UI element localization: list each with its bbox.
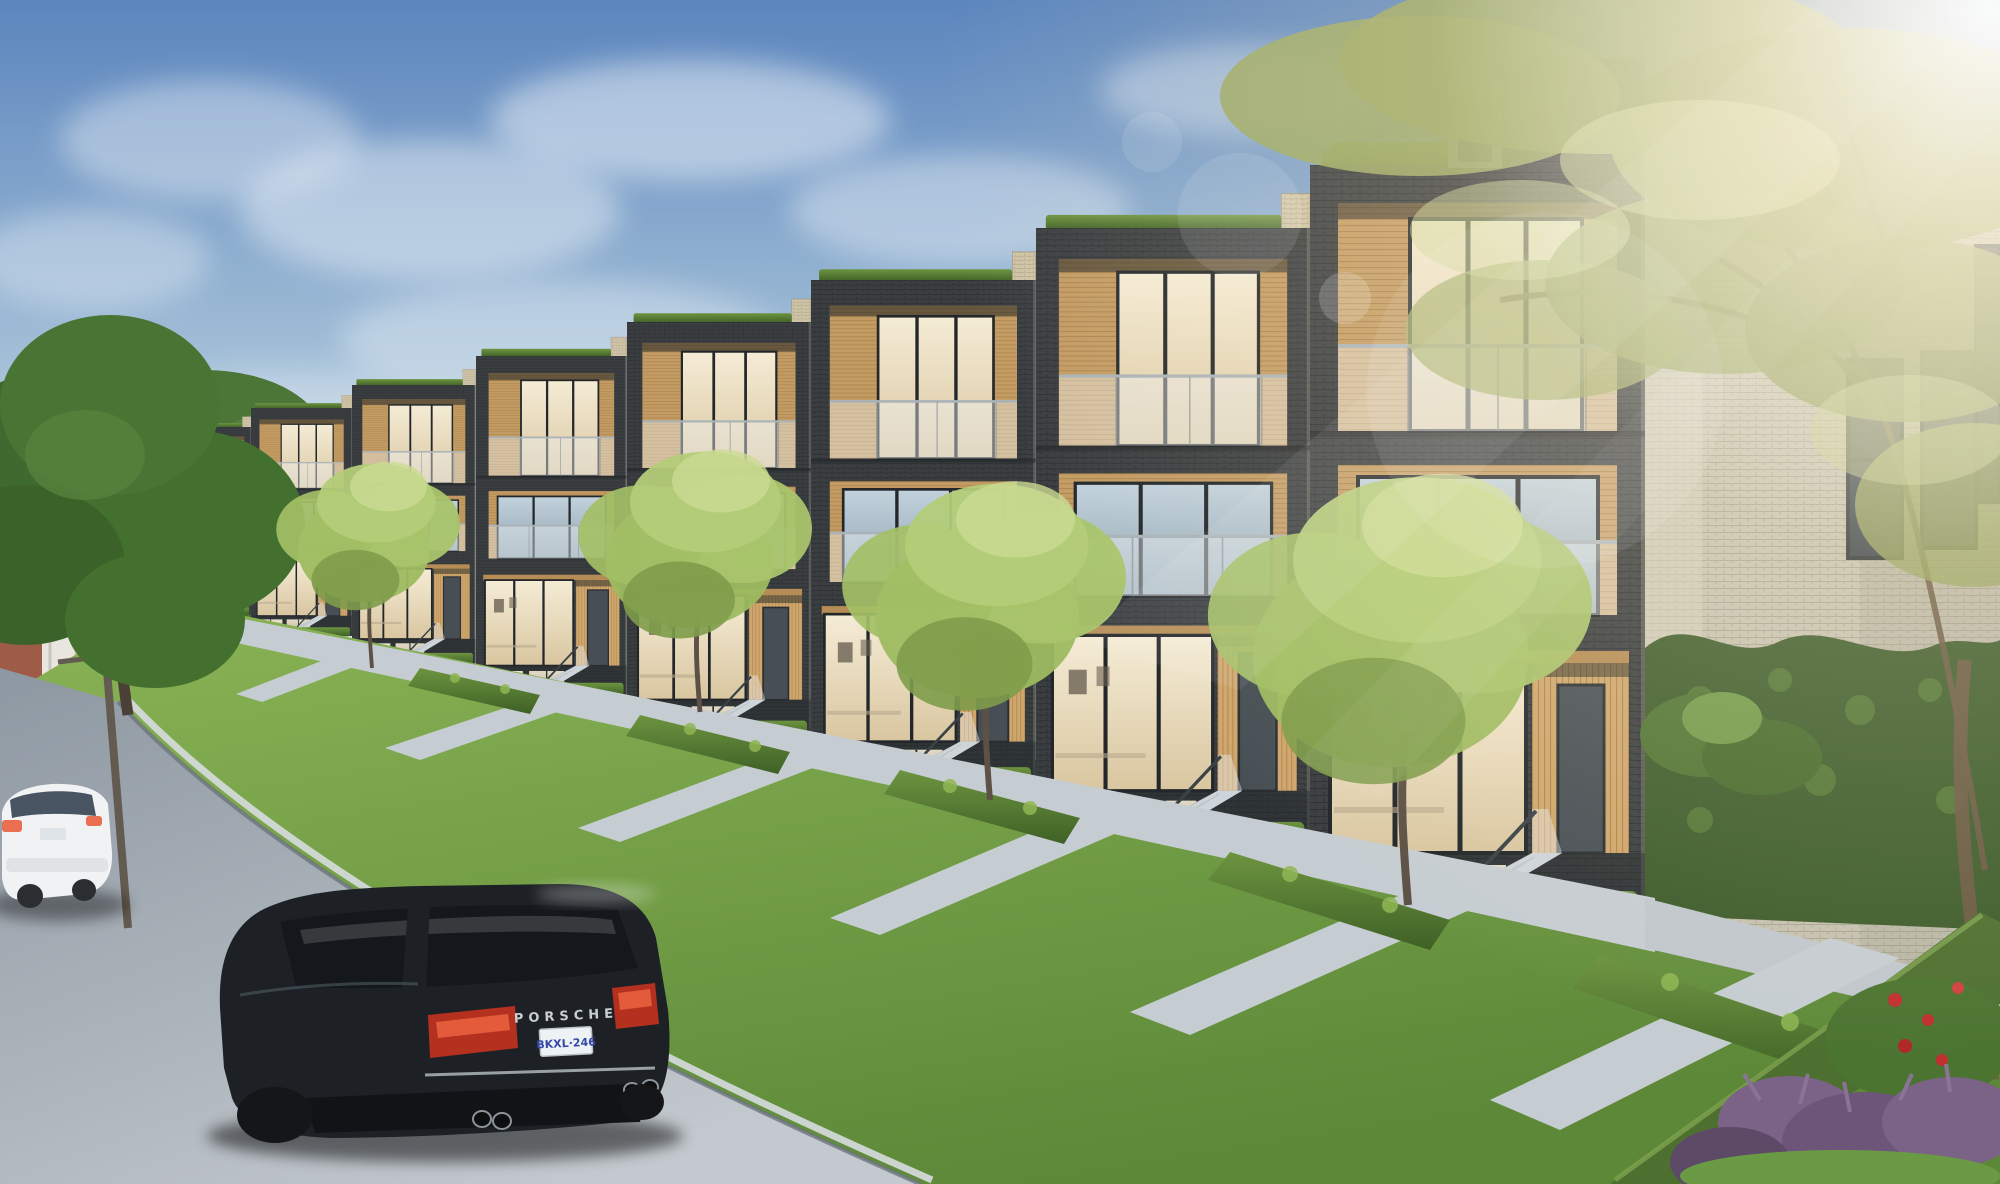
suv-license-plate: BKXL·246 <box>536 1026 597 1056</box>
rendering-scene: PORSCHE BKXL·246 <box>0 0 2000 1184</box>
suv: PORSCHE BKXL·246 <box>207 884 683 1162</box>
